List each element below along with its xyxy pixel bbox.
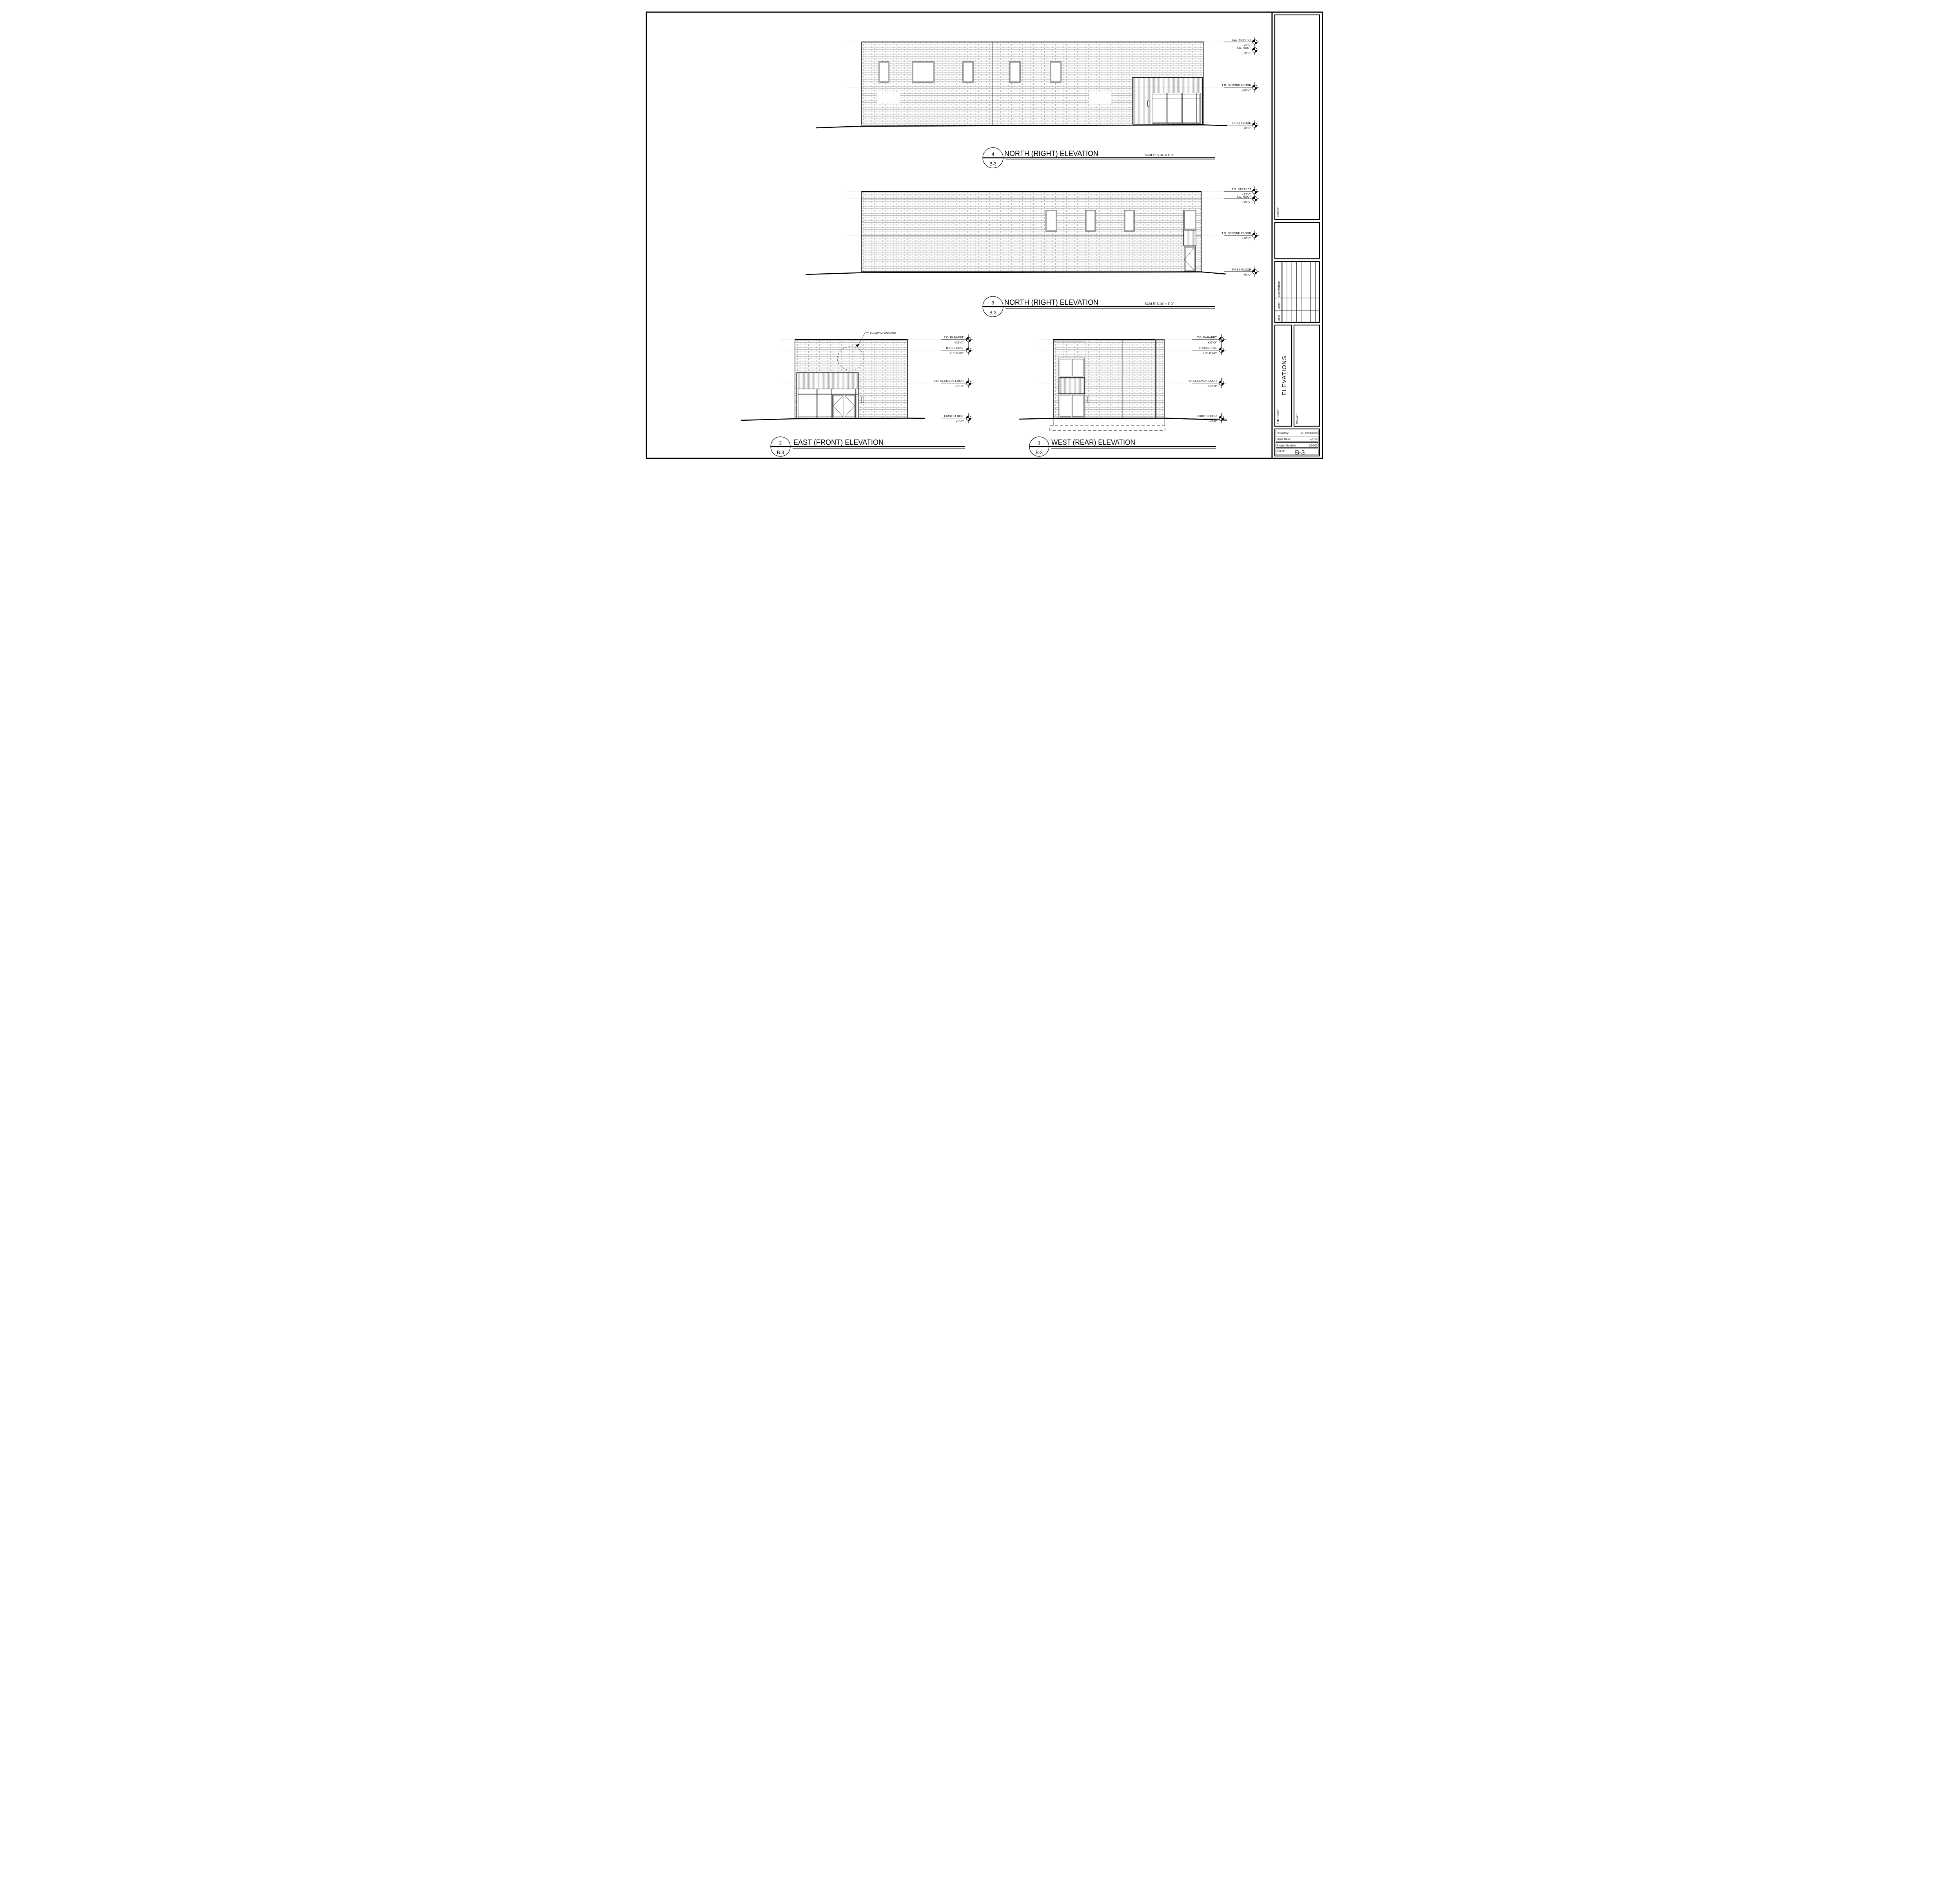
- sheet-number: B-3: [1295, 449, 1305, 456]
- view-number: 1: [1038, 440, 1041, 446]
- level-label: T.O. PARAPET: [1197, 336, 1217, 339]
- view-title-text: NORTH (RIGHT) ELEVATION: [1004, 150, 1098, 158]
- entry-section: [1133, 77, 1203, 124]
- view-sheet-ref: B-3: [777, 451, 784, 455]
- level-value: +10'-0": [1242, 236, 1252, 240]
- level-value: +0'-0": [1244, 126, 1252, 130]
- level-value: +10'-0": [955, 384, 964, 388]
- level-label: TRUSS BRG.: [946, 346, 964, 350]
- brick-wall: [862, 191, 1201, 272]
- drawing-sheet: T.O. PARAPET +22'-0" T.O. ROOF +20'-0" T…: [627, 0, 1333, 470]
- level-value: +19'-0 1/2": [1203, 351, 1217, 355]
- revision-table: Description: Date: Rev:: [1275, 262, 1319, 322]
- level-value: +0'-0": [1209, 420, 1217, 423]
- owner-label: Owner:: [1276, 207, 1280, 217]
- view-number: 2: [779, 440, 782, 446]
- issue-date-label: Issue Date:: [1277, 438, 1290, 441]
- level-value: +22'-0": [955, 341, 964, 344]
- view-title-text: NORTH (RIGHT) ELEVATION: [1004, 299, 1098, 307]
- service-door: [1184, 246, 1196, 272]
- level-label: TRUSS BRG.: [1199, 346, 1217, 350]
- entry-section: [797, 373, 863, 418]
- signage-panel: [1089, 93, 1111, 104]
- drawn-by-label: Drawn by:: [1277, 432, 1289, 435]
- level-label: T.O. PARAPET: [1232, 187, 1252, 191]
- view-number: 3: [992, 300, 995, 306]
- level-label: T.O. SECOND FLOOR: [1221, 84, 1251, 87]
- level-value: +20'-0": [1242, 51, 1252, 55]
- entry-double-door: [833, 395, 856, 418]
- drawn-by-value: D. Templeton: [1301, 432, 1318, 435]
- level-value: +10'-0": [1242, 89, 1252, 92]
- project-number-value: 24-005: [1309, 445, 1318, 447]
- view-title-text: WEST (REAR) ELEVATION: [1051, 439, 1135, 447]
- level-value: +22'-0": [1208, 341, 1217, 344]
- rev-label: Rev:: [1277, 315, 1281, 321]
- level-value: +0'-0": [1244, 273, 1252, 276]
- louver-panel: [1184, 230, 1196, 246]
- level-label: T.O. SECOND FLOOR: [934, 379, 964, 383]
- level-label: FIRST FLOOR: [944, 414, 964, 418]
- level-value: +0'-0": [956, 420, 964, 423]
- titleblock: Owner: Description: Date: Rev: Title She…: [1275, 15, 1319, 456]
- level-value: +10'-0": [1208, 384, 1217, 388]
- level-label: FIRST FLOOR: [1198, 414, 1217, 418]
- rear-window-upper: [1059, 358, 1085, 378]
- light-fixture: [1087, 397, 1089, 402]
- sheet-title: ELEVATIONS: [1281, 356, 1288, 396]
- brick-pier: [1156, 340, 1164, 418]
- light-fixture: [1148, 101, 1149, 106]
- issue-date-value: 5-1-24: [1310, 438, 1318, 441]
- title-sheet-label: Title Sheet:: [1276, 409, 1280, 424]
- storefront-window: [1152, 93, 1201, 124]
- project-label: Project:: [1296, 414, 1299, 424]
- level-label: T.O. ROOF: [1237, 195, 1252, 198]
- date-label: Date:: [1277, 302, 1281, 309]
- sheet-info-block: Drawn by: D. Templeton Issue Date: 5-1-2…: [1275, 429, 1319, 456]
- stamp-box: [1275, 222, 1319, 259]
- light-fixture: [862, 397, 863, 403]
- level-label: T.O. SECOND FLOOR: [1187, 379, 1217, 383]
- description-label: Description:: [1277, 281, 1281, 297]
- level-label: T.O. ROOF: [1237, 46, 1252, 50]
- spandrel-siding: [1059, 378, 1085, 394]
- signage-panel: [877, 93, 900, 103]
- view-sheet-ref: B-3: [1036, 451, 1043, 455]
- sheet-label: Sheet:: [1277, 450, 1285, 453]
- rear-window-lower: [1059, 394, 1085, 418]
- owner-box: [1275, 15, 1319, 220]
- view-scale: SCALE: 3/16" = 1'-0": [1145, 302, 1174, 306]
- project-box: [1294, 325, 1319, 426]
- view-number: 4: [992, 151, 995, 157]
- level-label: T.O. PARAPET: [1232, 38, 1252, 42]
- level-label: FIRST FLOOR: [1232, 121, 1252, 125]
- level-value: +20'-0": [1242, 200, 1252, 203]
- level-label: T.O. SECOND FLOOR: [1221, 231, 1251, 235]
- view-sheet-ref: B-3: [989, 162, 996, 167]
- project-number-label: Project Number:: [1277, 445, 1297, 447]
- level-label: FIRST FLOOR: [1232, 268, 1252, 271]
- signage-label: BUILDING SIGNAGE: [870, 332, 896, 334]
- level-label: T.O. PARAPET: [944, 336, 964, 339]
- view-title-text: EAST (FRONT) ELEVATION: [793, 439, 884, 447]
- level-value: +19'-0 1/2": [949, 351, 964, 355]
- view-sheet-ref: B-3: [989, 311, 996, 316]
- view-scale: SCALE: 3/16" = 1'-0": [1145, 153, 1174, 157]
